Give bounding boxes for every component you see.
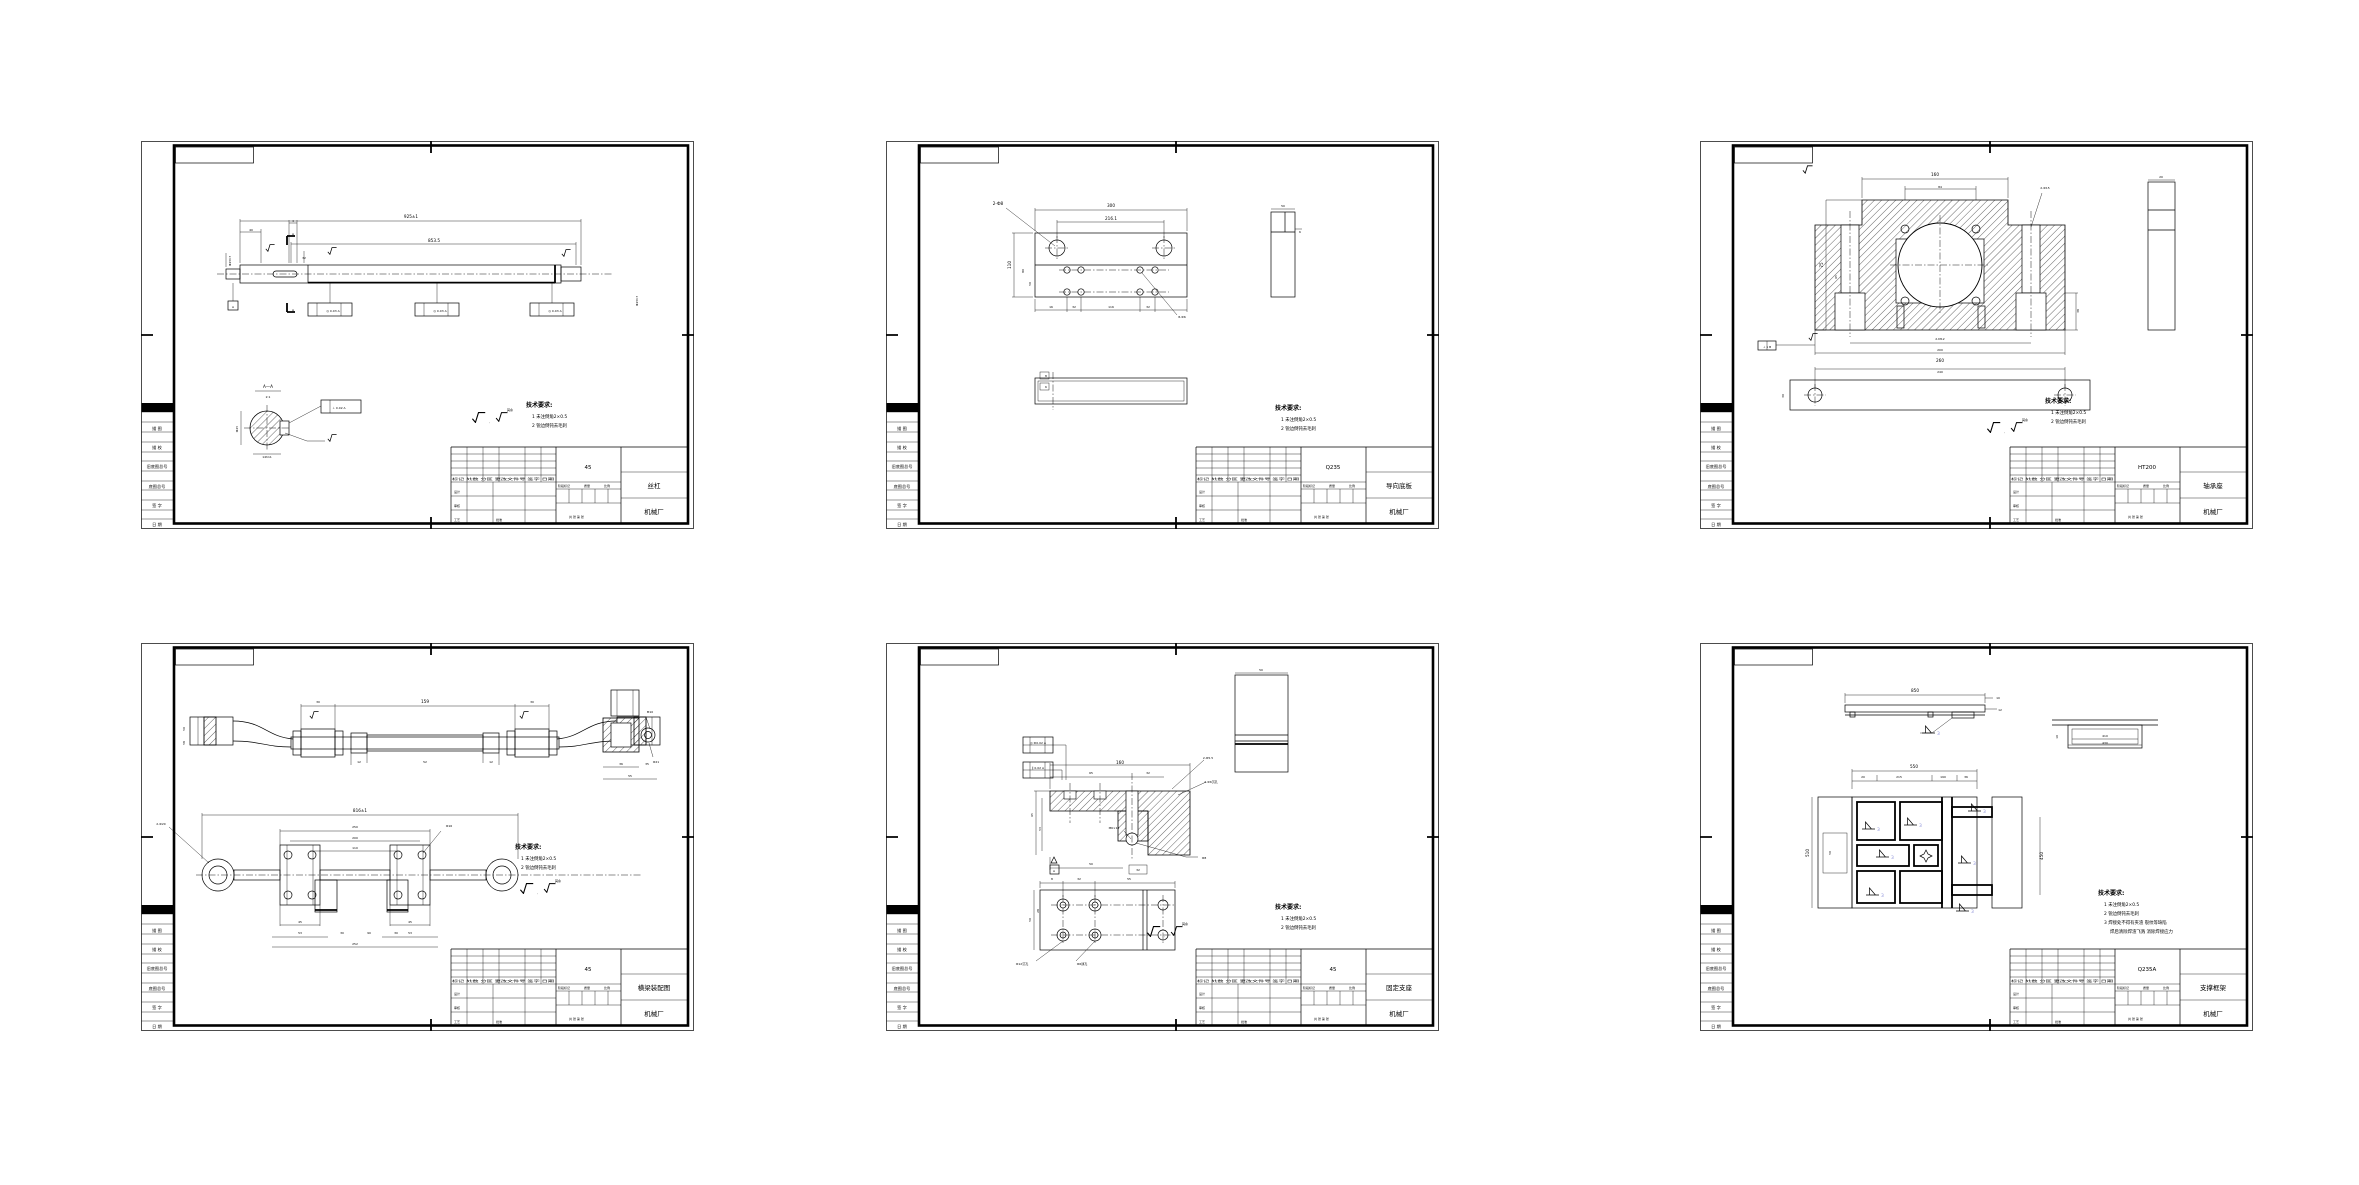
svg-text:2 锐边倒钝去毛刺: 2 锐边倒钝去毛刺 xyxy=(1281,425,1317,432)
svg-text:质量: 质量 xyxy=(1329,483,1335,488)
dim-label: 53 xyxy=(408,931,412,935)
dim-label: 853.5 xyxy=(428,238,440,243)
margin-label: 日 期 xyxy=(897,1024,907,1030)
dim-label: 10 xyxy=(1996,696,2000,700)
company-name: 机械厂 xyxy=(2203,507,2223,516)
sheet-frame xyxy=(1700,643,2253,1031)
material-cell: 45 xyxy=(585,465,592,471)
dim-label: 410 xyxy=(2102,734,2108,738)
svg-text:比例: 比例 xyxy=(2163,483,2169,488)
dim-label: 65 xyxy=(1834,275,1838,279)
tb-micro-row: 标记 处数 分区 更改文件号 签字 日期 xyxy=(1197,476,1299,481)
dim-label: Ф25 xyxy=(235,426,239,432)
tb-micro-row: 标记 处数 分区 更改文件号 签字 日期 xyxy=(452,476,554,481)
margin-label: 日 期 xyxy=(1711,1024,1721,1030)
svg-text:比例: 比例 xyxy=(1349,483,1355,488)
material-cell: 45 xyxy=(585,967,592,973)
svg-text:工艺: 工艺 xyxy=(1199,1019,1205,1024)
dim-label: 55 xyxy=(1127,877,1131,881)
dim-label: 8 xyxy=(1045,374,1047,378)
dim-label: 53 xyxy=(1038,827,1042,831)
margin-strip: 描 图 描 校 旧底图总号 底图总号 签 字 日 期 xyxy=(887,905,920,1030)
dim-label: 50 xyxy=(1089,862,1093,866)
material-cell: Q235A xyxy=(2138,967,2157,973)
margin-label: 描 图 xyxy=(1711,927,1721,934)
svg-text:技术要求:: 技术要求: xyxy=(1275,404,1301,412)
title-block: Q235A 标记 处数 分区 更改文件号 签字 日期 设计 审核 工艺 批准 阶… xyxy=(2010,949,2247,1026)
tech-notes: 技术要求: 1 未注倒角2×0.5 2 锐边倒钝去毛刺 xyxy=(515,843,557,871)
title-block: HT200 标记 处数 分区 更改文件号 签字 日期 设计 审核 工艺 批准 阶… xyxy=(2010,447,2247,524)
svg-text:比例: 比例 xyxy=(2163,985,2169,990)
dim-label: 240 xyxy=(1937,370,1943,374)
dim-label: A xyxy=(1053,869,1056,873)
tb-micro-row: 标记 处数 分区 更改文件号 签字 日期 xyxy=(452,978,554,983)
dim-label: ◎ 0.03 A xyxy=(548,309,562,313)
dim-label: ◎ Ф0.02 A xyxy=(1030,741,1047,745)
svg-text:批准: 批准 xyxy=(496,1019,502,1024)
dim-label: 850 xyxy=(1911,688,1919,693)
svg-text:阶段标记: 阶段标记 xyxy=(558,985,570,990)
company-name: 机械厂 xyxy=(1389,1009,1409,1018)
dim-label: 2-Ф8 xyxy=(993,201,1004,206)
svg-text:批准: 批准 xyxy=(2055,1019,2061,1024)
dim-label: 50 xyxy=(1259,668,1263,672)
dim-label: 38 xyxy=(2076,309,2080,313)
margin-label: 旧底图总号 xyxy=(1706,965,1727,972)
dim-label: 430 xyxy=(2102,741,2108,745)
sheet-frame xyxy=(1700,141,2253,529)
svg-text:共 张 第 张: 共 张 第 张 xyxy=(1314,1016,1329,1021)
dim-label: 12 xyxy=(357,760,361,764)
drawing-sheet-2: 描 图 描 校 旧底图总号 底图总号 签 字 日 期 Q235 标记 处数 分区… xyxy=(886,141,1439,529)
tb-micro-row: 标记 处数 分区 更改文件号 签字 日期 xyxy=(2011,978,2113,983)
margin-label: 签 字 xyxy=(1711,502,1721,508)
dim-label: 8 xyxy=(1051,877,1053,881)
dim-label: Ф12沉孔 xyxy=(1016,961,1028,966)
dim-label: 110 xyxy=(1007,261,1012,269)
svg-text:2 锐边倒钝去毛刺: 2 锐边倒钝去毛刺 xyxy=(2104,910,2140,917)
material-cell: 45 xyxy=(1330,967,1337,973)
weld-symbol: 3 xyxy=(1956,904,1974,915)
margin-label: 签 字 xyxy=(152,502,162,508)
margin-label: 日 期 xyxy=(1711,522,1721,528)
dim-label: 159 xyxy=(421,699,429,704)
drawing-sheet-6: 描 图 描 校 旧底图总号 底图总号 签 字 日 期 Q235A 标记 处数 分… xyxy=(1700,643,2253,1031)
svg-text:技术要求:: 技术要求: xyxy=(1275,903,1301,911)
margin-label: 底图总号 xyxy=(149,483,166,490)
weld-symbol: 3 xyxy=(1876,850,1894,861)
dim-label: 50 xyxy=(1828,851,1832,855)
dim-label: 30 xyxy=(340,931,344,935)
dim-label: 90 xyxy=(367,931,371,935)
svg-text:1 未注倒角2×0.5: 1 未注倒角2×0.5 xyxy=(1281,915,1316,922)
part-name: 丝杠 xyxy=(648,481,662,490)
dim-label: 50 xyxy=(1028,282,1032,286)
svg-text:质量: 质量 xyxy=(1329,985,1335,990)
drawing-content: 300216.111080502-Ф88-Ф616321163250686 xyxy=(993,201,1302,410)
margin-label: 签 字 xyxy=(897,502,907,508)
margin-label: 签 字 xyxy=(897,1004,907,1010)
material-cell: HT200 xyxy=(2138,465,2156,471)
dim-label: 6 xyxy=(1299,230,1301,234)
dim-label: 35 xyxy=(645,762,649,766)
svg-text:1 未注倒角2×0.5: 1 未注倒角2×0.5 xyxy=(1281,416,1316,423)
svg-text:设计: 设计 xyxy=(2013,991,2019,996)
dim-label: 36 xyxy=(619,762,623,766)
dim-label: 45 xyxy=(298,920,302,924)
margin-label: 日 期 xyxy=(152,522,162,528)
dim-label: 160 xyxy=(1931,172,1939,177)
dim-label: 65 xyxy=(1089,771,1093,775)
tb-micro-row: 标记 处数 分区 更改文件号 签字 日期 xyxy=(2011,476,2113,481)
dim-label: 110 xyxy=(352,846,358,850)
svg-text:质量: 质量 xyxy=(584,483,590,488)
dim-label: 190 xyxy=(1940,775,1946,779)
drawing-content: 160842-Ф157565382-M12200260⊥ 1 B2024030 xyxy=(1758,166,2175,410)
weld-number: 3 xyxy=(1971,909,1974,915)
dim-label: 32 xyxy=(1077,877,1081,881)
dim-label: 250 xyxy=(352,825,358,829)
surface-finish-legend: , 其余 xyxy=(520,878,561,895)
svg-text:共 张 第 张: 共 张 第 张 xyxy=(2128,514,2143,519)
dim-label: 10 xyxy=(2055,735,2059,739)
svg-text:阶段标记: 阶段标记 xyxy=(2117,483,2129,488)
dim-label: 30 xyxy=(1781,394,1785,398)
svg-text:比例: 比例 xyxy=(604,483,610,488)
margin-label: 描 校 xyxy=(897,946,908,953)
svg-text:设计: 设计 xyxy=(1199,991,1205,996)
part-name: 支撑框架 xyxy=(2200,983,2227,992)
dim-label: 260 xyxy=(1936,358,1944,363)
svg-text:2 锐边倒钝去毛刺: 2 锐边倒钝去毛刺 xyxy=(532,422,568,429)
dim-label: 252 xyxy=(352,942,358,946)
weld-symbol: 3 xyxy=(1904,818,1922,829)
weld-number: 3 xyxy=(1881,893,1884,899)
dim-label: 2:1 xyxy=(266,395,271,399)
dim-label: 116 xyxy=(1108,305,1114,309)
weld-symbol: 3 xyxy=(1922,726,1940,737)
svg-text:其余: 其余 xyxy=(2022,417,2028,422)
svg-text:阶段标记: 阶段标记 xyxy=(2117,985,2129,990)
dim-label: 2-Ф15 xyxy=(2040,186,2049,190)
tech-notes: 技术要求: 1 未注倒角2×0.5 2 锐边倒钝去毛刺 xyxy=(1275,404,1317,432)
title-block: Q235 标记 处数 分区 更改文件号 签字 日期 设计 审核 工艺 批准 阶段… xyxy=(1196,447,1433,524)
weld-number: 3 xyxy=(1877,827,1880,833)
dim-label: Ф25h7 xyxy=(228,256,232,266)
margin-label: 旧底图总号 xyxy=(147,965,168,972)
dim-label: Ф21 xyxy=(653,760,659,764)
dim-label: ∥ 0.02 A xyxy=(1032,766,1045,770)
dim-label: ◎ 0.03 A xyxy=(433,309,447,313)
margin-label: 签 字 xyxy=(1711,1004,1721,1010)
margin-label: 描 校 xyxy=(1711,946,1722,953)
svg-text:比例: 比例 xyxy=(1349,985,1355,990)
tech-notes: 技术要求: 1 未注倒角2×0.5 2 锐边倒钝去毛刺 3 焊接处不得有夹渣 裂… xyxy=(2098,889,2173,935)
svg-text:审核: 审核 xyxy=(1199,1005,1205,1010)
margin-strip: 描 图 描 校 旧底图总号 底图总号 签 字 日 期 xyxy=(1701,403,1734,528)
dim-label: A xyxy=(232,305,235,309)
dim-label: 2-Ф6沉孔 xyxy=(1204,779,1217,784)
tb-micro-row: 标记 处数 分区 更改文件号 签字 日期 xyxy=(1197,978,1299,983)
dim-label: 30 xyxy=(394,931,398,935)
dim-label: 20 xyxy=(1861,775,1865,779)
weld-symbol: 3 xyxy=(1958,856,1976,867)
margin-label: 旧底图总号 xyxy=(147,463,168,470)
svg-text:3 焊接处不得有夹渣 裂纹等缺陷: 3 焊接处不得有夹渣 裂纹等缺陷 xyxy=(2104,919,2167,926)
margin-strip: 描 图 描 校 旧底图总号 底图总号 签 字 日 期 xyxy=(142,905,175,1030)
dim-label: 30 xyxy=(316,700,320,704)
margin-strip: 描 图 描 校 旧底图总号 底图总号 签 字 日 期 xyxy=(1701,905,1734,1030)
drawing-sheet-1: 描 图 描 校 旧底图总号 底图总号 签 字 日 期 45 标记 处数 分区 更… xyxy=(141,141,694,529)
svg-text:审核: 审核 xyxy=(2013,503,2019,508)
margin-strip: 描 图 描 校 旧底图总号 底图总号 签 字 日 期 xyxy=(887,403,920,528)
margin-label: 描 图 xyxy=(897,425,907,432)
dim-label: 200 xyxy=(352,836,358,840)
margin-label: 日 期 xyxy=(152,1024,162,1030)
company-name: 机械厂 xyxy=(2203,1009,2223,1018)
svg-text:其余: 其余 xyxy=(555,878,561,883)
margin-label: 日 期 xyxy=(897,522,907,528)
dim-label: 12 xyxy=(489,760,493,764)
dim-label: M6×12 xyxy=(1109,826,1120,830)
drawing-sheet-5: 描 图 描 校 旧底图总号 底图总号 签 字 日 期 45 标记 处数 分区 更… xyxy=(886,643,1439,1031)
cad-canvas: 描 图 描 校 旧底图总号 底图总号 签 字 日 期 45 标记 处数 分区 更… xyxy=(0,0,2359,1185)
drawing-content: 30159305058125212816±12502001102-Ф20Ф164… xyxy=(156,690,660,947)
dim-label: 32 xyxy=(1146,305,1150,309)
dim-label: 65 xyxy=(1030,813,1034,817)
svg-text:比例: 比例 xyxy=(604,985,610,990)
tech-notes: 技术要求: 1 未注倒角2×0.5 2 锐边倒钝去毛刺 xyxy=(1275,903,1317,931)
svg-text:工艺: 工艺 xyxy=(2013,1019,2019,1024)
tech-notes: 技术要求: 1 未注倒角2×0.5 2 锐边倒钝去毛刺 xyxy=(2045,397,2087,425)
svg-text:工艺: 工艺 xyxy=(454,1019,460,1024)
dim-label: 816±1 xyxy=(353,808,368,813)
svg-text:质量: 质量 xyxy=(2143,985,2149,990)
margin-label: 底图总号 xyxy=(149,985,166,992)
dim-label: 30 xyxy=(530,700,534,704)
drawing-sheet-4: 描 图 描 校 旧底图总号 底图总号 签 字 日 期 45 标记 处数 分区 更… xyxy=(141,643,694,1031)
weld-number: 3 xyxy=(1937,731,1940,737)
dim-label: 84 xyxy=(1938,185,1942,189)
dim-label: 36 xyxy=(1964,775,1968,779)
dim-label: 2-Ф20 xyxy=(156,822,165,826)
dim-label: 50 xyxy=(182,727,186,731)
dim-label: 40 xyxy=(249,228,253,232)
dim-label: 32 xyxy=(302,256,306,260)
svg-text:技术要求:: 技术要求: xyxy=(2045,397,2071,405)
weld-number: 3 xyxy=(1919,823,1922,829)
svg-text:2 锐边倒钝去毛刺: 2 锐边倒钝去毛刺 xyxy=(521,864,557,871)
dim-label: 16 xyxy=(1049,305,1053,309)
dim-label: 32 xyxy=(1146,771,1150,775)
svg-text:,: , xyxy=(1164,934,1165,938)
svg-text:阶段标记: 阶段标记 xyxy=(1303,985,1315,990)
svg-text:质量: 质量 xyxy=(584,985,590,990)
dim-label: 216.1 xyxy=(1105,216,1117,221)
dim-label: 14h11 xyxy=(262,455,272,459)
dim-label: 55 xyxy=(628,774,632,778)
margin-strip: 描 图 描 校 旧底图总号 底图总号 签 字 日 期 xyxy=(142,403,175,528)
margin-label: 描 图 xyxy=(897,927,907,934)
dim-label: 52 xyxy=(423,760,427,764)
margin-label: 描 图 xyxy=(1711,425,1721,432)
dim-label: 200 xyxy=(1937,348,1943,352)
dim-label: ◎ 0.03 A xyxy=(326,309,340,313)
margin-label: 描 图 xyxy=(152,927,162,934)
drawing-content: 160653265535032M6×122-Ф5.52-Ф6沉孔Ф8508325… xyxy=(1016,668,1288,966)
dim-label: 80 xyxy=(1021,269,1025,273)
dim-label: A—A xyxy=(263,384,273,389)
dim-label: Ф8 xyxy=(1202,856,1207,860)
svg-text:技术要求:: 技术要求: xyxy=(526,401,552,409)
svg-text:共 张 第 张: 共 张 第 张 xyxy=(2128,1016,2143,1021)
margin-label: 旧底图总号 xyxy=(892,965,913,972)
svg-text:2 锐边倒钝去毛刺: 2 锐边倒钝去毛刺 xyxy=(1281,924,1317,931)
drawing-content: 8501012410430105502021519036510450503333… xyxy=(1805,688,2158,915)
company-name: 机械厂 xyxy=(644,1009,664,1018)
svg-text:1 未注倒角2×0.5: 1 未注倒角2×0.5 xyxy=(521,855,556,862)
svg-text:其余: 其余 xyxy=(507,407,513,412)
margin-label: 旧底图总号 xyxy=(892,463,913,470)
part-name: 轴承座 xyxy=(2203,481,2223,490)
svg-text:,: , xyxy=(537,891,538,895)
weld-number: 3 xyxy=(1973,861,1976,867)
svg-text:批准: 批准 xyxy=(1241,1019,1247,1024)
margin-label: 底图总号 xyxy=(1708,483,1725,490)
svg-text:1 未注倒角2×0.5: 1 未注倒角2×0.5 xyxy=(2104,901,2139,908)
dim-label: 925±1 xyxy=(404,214,419,219)
company-name: 机械厂 xyxy=(1389,507,1409,516)
sheet-frame xyxy=(886,141,1439,529)
svg-text:,: , xyxy=(2004,430,2005,434)
part-name: 固定支座 xyxy=(1386,983,1413,992)
dim-label: 215 xyxy=(1896,775,1902,779)
dim-label: ⊥ 1 B xyxy=(1763,345,1772,349)
svg-text:审核: 审核 xyxy=(2013,1005,2019,1010)
svg-text:设计: 设计 xyxy=(1199,489,1205,494)
svg-text:批准: 批准 xyxy=(1241,517,1247,522)
material-cell: Q235 xyxy=(1326,465,1341,471)
margin-label: 描 图 xyxy=(152,425,162,432)
margin-label: 旧底图总号 xyxy=(1706,463,1727,470)
svg-text:阶段标记: 阶段标记 xyxy=(558,483,570,488)
dim-label: 12 xyxy=(1998,708,2002,712)
dim-label: 53 xyxy=(298,931,302,935)
dim-label: 450 xyxy=(2039,852,2044,860)
surface-finish-legend: , 其余 xyxy=(472,407,513,424)
dim-label: 510 xyxy=(1805,849,1810,857)
dim-label: 50 xyxy=(1028,918,1032,922)
surface-finish-legend: , 其余 xyxy=(1987,417,2028,434)
dim-label: Ф6通孔 xyxy=(1077,961,1088,966)
svg-text:工艺: 工艺 xyxy=(1199,517,1205,522)
dim-label: ⊥ 0.02 A xyxy=(332,406,346,410)
dim-label: 300 xyxy=(1107,203,1115,208)
margin-label: 描 校 xyxy=(897,444,908,451)
dim-label: 6 xyxy=(1045,385,1047,389)
svg-text:批准: 批准 xyxy=(2055,517,2061,522)
margin-label: 签 字 xyxy=(152,1004,162,1010)
part-name: 横梁装配图 xyxy=(638,983,671,992)
margin-label: 描 校 xyxy=(1711,444,1722,451)
dim-label: 4 xyxy=(292,219,294,223)
tech-notes: 技术要求: 1 未注倒角2×0.5 2 锐边倒钝去毛刺 xyxy=(526,401,568,429)
svg-text:共 张 第 张: 共 张 第 张 xyxy=(569,514,584,519)
margin-label: 底图总号 xyxy=(894,985,911,992)
title-block: 45 标记 处数 分区 更改文件号 签字 日期 设计 审核 工艺 批准 阶段标记… xyxy=(451,949,688,1026)
dim-label: 32 xyxy=(1136,868,1140,872)
svg-text:设计: 设计 xyxy=(454,991,460,996)
svg-text:批准: 批准 xyxy=(496,517,502,522)
dim-label: Ф25h7 xyxy=(635,296,639,306)
svg-text:,: , xyxy=(489,420,490,424)
svg-text:阶段标记: 阶段标记 xyxy=(1303,483,1315,488)
dim-label: 75 xyxy=(1819,262,1824,268)
title-block: 45 标记 处数 分区 更改文件号 签字 日期 设计 审核 工艺 批准 阶段标记… xyxy=(1196,949,1433,1026)
svg-text:审核: 审核 xyxy=(1199,503,1205,508)
part-name: 导向底板 xyxy=(1386,481,1413,490)
dim-label: M10 xyxy=(647,710,653,714)
dim-label: 32 xyxy=(1072,305,1076,309)
svg-text:审核: 审核 xyxy=(454,1005,460,1010)
sheet-frame xyxy=(141,141,694,529)
margin-label: 描 校 xyxy=(152,946,163,953)
svg-text:技术要求:: 技术要求: xyxy=(2098,889,2124,897)
dim-label: 20 xyxy=(2159,175,2163,179)
dim-label: 2-M12 xyxy=(1935,337,1944,341)
svg-text:2 锐边倒钝去毛刺: 2 锐边倒钝去毛刺 xyxy=(2051,418,2087,425)
dim-label: 45 xyxy=(408,920,412,924)
svg-text:共 张 第 张: 共 张 第 张 xyxy=(569,1016,584,1021)
svg-text:工艺: 工艺 xyxy=(2013,517,2019,522)
svg-text:焊后清除焊渣飞溅 消除焊接应力: 焊后清除焊渣飞溅 消除焊接应力 xyxy=(2110,928,2173,935)
svg-text:其余: 其余 xyxy=(1182,921,1188,926)
weld-symbol: 3 xyxy=(1862,822,1880,833)
title-block: 45 标记 处数 分区 更改文件号 签字 日期 设计 审核 工艺 批准 阶段标记… xyxy=(451,447,688,524)
dim-label: Ф16 xyxy=(446,824,452,828)
drawing-content: 925±1853.540432Ф25h7Ф25h7AAA◎ 0.03 A◎ 0.… xyxy=(217,214,639,459)
weld-symbol: 3 xyxy=(1866,888,1884,899)
svg-text:设计: 设计 xyxy=(454,489,460,494)
dim-label: 550 xyxy=(1910,764,1918,769)
svg-text:1 未注倒角2×0.5: 1 未注倒角2×0.5 xyxy=(532,413,567,420)
margin-label: 底图总号 xyxy=(1708,985,1725,992)
dim-label: 160 xyxy=(1116,760,1124,765)
weld-number: 3 xyxy=(1891,855,1894,861)
weld-number: 3 xyxy=(1983,809,1986,815)
svg-text:设计: 设计 xyxy=(2013,489,2019,494)
svg-text:审核: 审核 xyxy=(454,503,460,508)
svg-text:技术要求:: 技术要求: xyxy=(515,843,541,851)
company-name: 机械厂 xyxy=(644,507,664,516)
svg-text:工艺: 工艺 xyxy=(454,517,460,522)
drawing-sheet-3: 描 图 描 校 旧底图总号 底图总号 签 字 日 期 HT200 标记 处数 分… xyxy=(1700,141,2253,529)
dim-label: 58 xyxy=(182,741,186,745)
dim-label: 50 xyxy=(1281,204,1285,208)
margin-label: 底图总号 xyxy=(894,483,911,490)
svg-text:质量: 质量 xyxy=(2143,483,2149,488)
dim-label: 28 xyxy=(1036,909,1040,913)
dim-label: 2-Ф5.5 xyxy=(1203,756,1213,760)
dim-label: 8-Ф6 xyxy=(1178,315,1186,319)
margin-label: 描 校 xyxy=(152,444,163,451)
svg-text:共 张 第 张: 共 张 第 张 xyxy=(1314,514,1329,519)
